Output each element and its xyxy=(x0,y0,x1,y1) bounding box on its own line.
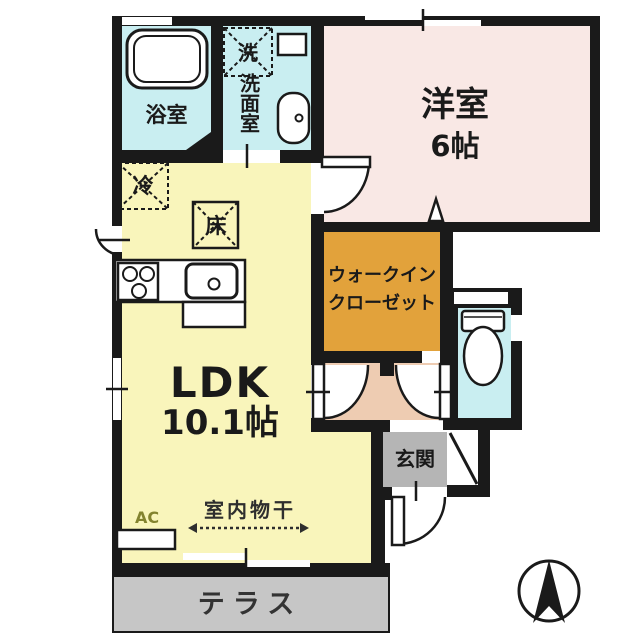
label-refrigerator-symbol: 冷 xyxy=(127,172,159,200)
compass-circle xyxy=(519,561,579,621)
toilet-window-top xyxy=(454,292,508,304)
wall-right-western xyxy=(590,16,600,232)
label-genkan: 玄関 xyxy=(385,446,445,472)
wall-toilet-right xyxy=(511,288,522,430)
room-ldk-floor-ext xyxy=(311,432,371,563)
label-ac: AC xyxy=(122,508,172,528)
label-wic-line1: ウォークイン xyxy=(326,264,438,288)
ldk-bottom-window-bar1 xyxy=(183,553,247,560)
genkan-hall-opening xyxy=(390,420,443,432)
room-bath-floor xyxy=(122,26,211,153)
bath-window xyxy=(122,17,172,25)
compass-north-needle-icon xyxy=(533,560,565,623)
wall-porch-right xyxy=(478,430,490,497)
wall-toilet-left xyxy=(447,288,458,430)
wall-hall-post xyxy=(380,358,394,376)
floorplan: 浴室 洗面室 洗 洋室 6帖 冷 床 LDK 10.1帖 ウォークイン クローゼ… xyxy=(0,0,640,640)
label-wic-line2: クローゼット xyxy=(322,292,442,316)
label-terrace: テラス xyxy=(160,590,340,620)
wall-wic-bottom xyxy=(311,351,422,363)
front-door-leaf xyxy=(392,497,404,545)
label-western-room: 洋室 xyxy=(370,86,540,126)
western-window-bar2 xyxy=(423,20,481,26)
room-toilet-floor xyxy=(458,308,511,418)
front-door-swing xyxy=(398,497,445,544)
wall-left xyxy=(112,16,122,575)
label-floor-storage-symbol: 床 xyxy=(200,212,232,240)
front-door-opening xyxy=(392,487,447,500)
wall-bath-bottom xyxy=(112,150,323,163)
porch-door-line xyxy=(450,433,477,484)
door-hall-left-leaf xyxy=(313,364,324,419)
wall-stub xyxy=(311,214,324,232)
wall-bath-washroom-divider xyxy=(211,26,223,150)
toilet-window-right xyxy=(511,315,522,341)
wall-western-bottom xyxy=(317,222,600,232)
label-indoor-laundry: 室内物干 xyxy=(180,498,320,522)
label-bath: 浴室 xyxy=(122,100,211,130)
front-door-arc xyxy=(398,497,445,544)
label-washroom: 洗面室 xyxy=(233,55,263,150)
washroom-door-opening xyxy=(223,150,280,163)
ldk-bottom-window-bar2 xyxy=(247,560,310,567)
label-washer-symbol: 洗 xyxy=(232,40,264,66)
wall-washroom-western xyxy=(311,16,324,162)
wall-ldk-right-lower xyxy=(371,497,385,575)
label-ldk: LDK xyxy=(140,362,300,404)
wall-toilet-bottom xyxy=(443,418,522,430)
label-ldk-size: 10.1帖 xyxy=(140,405,300,443)
western-window-bar1 xyxy=(365,14,423,20)
wall-stub2 xyxy=(311,418,324,432)
wall-top xyxy=(112,16,600,26)
ldk-left-window xyxy=(113,358,121,420)
left-wall-hatch xyxy=(96,226,122,252)
label-western-size: 6帖 xyxy=(370,128,540,164)
wic-door-opening xyxy=(422,351,440,363)
